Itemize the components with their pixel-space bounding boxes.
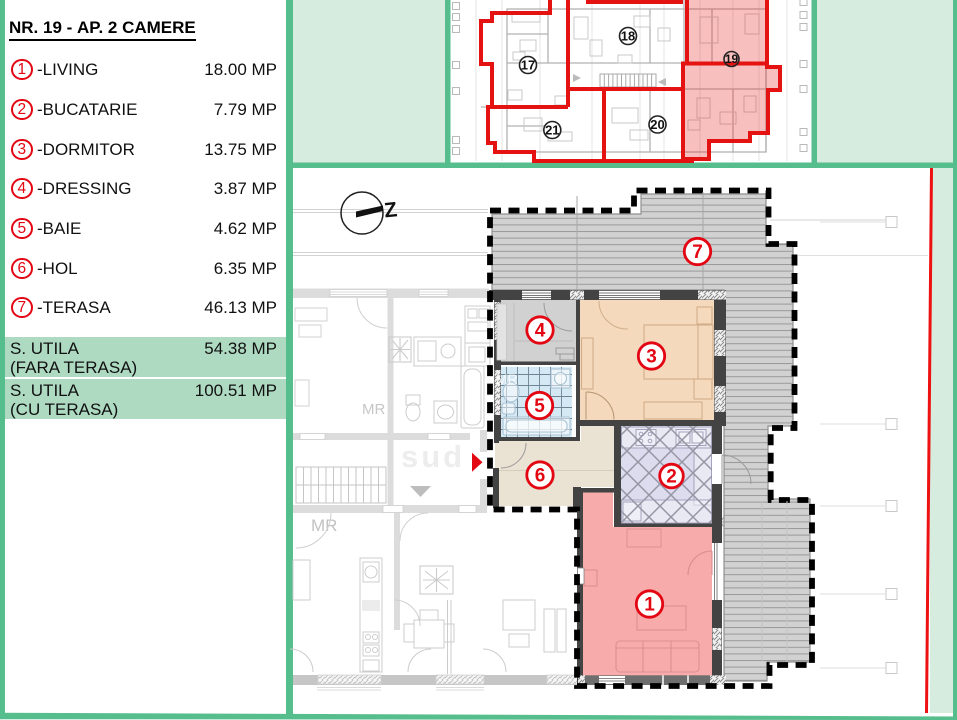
- svg-text:MR: MR: [496, 371, 518, 387]
- svg-text:5: 5: [534, 396, 545, 417]
- svg-text:20: 20: [650, 117, 664, 132]
- svg-text:4: 4: [535, 321, 546, 342]
- svg-text:Z: Z: [383, 198, 398, 222]
- svg-text:19: 19: [725, 52, 739, 66]
- svg-text:18: 18: [621, 29, 635, 44]
- svg-text:6: 6: [535, 466, 546, 487]
- svg-text:17: 17: [521, 58, 535, 73]
- svg-text:sud: sud: [401, 439, 465, 474]
- svg-text:MR: MR: [311, 516, 337, 535]
- svg-text:21: 21: [545, 123, 559, 138]
- svg-text:7: 7: [692, 242, 703, 263]
- svg-text:3: 3: [646, 347, 657, 368]
- svg-text:1: 1: [644, 595, 655, 616]
- svg-text:2: 2: [666, 467, 677, 488]
- svg-text:MR: MR: [362, 401, 385, 418]
